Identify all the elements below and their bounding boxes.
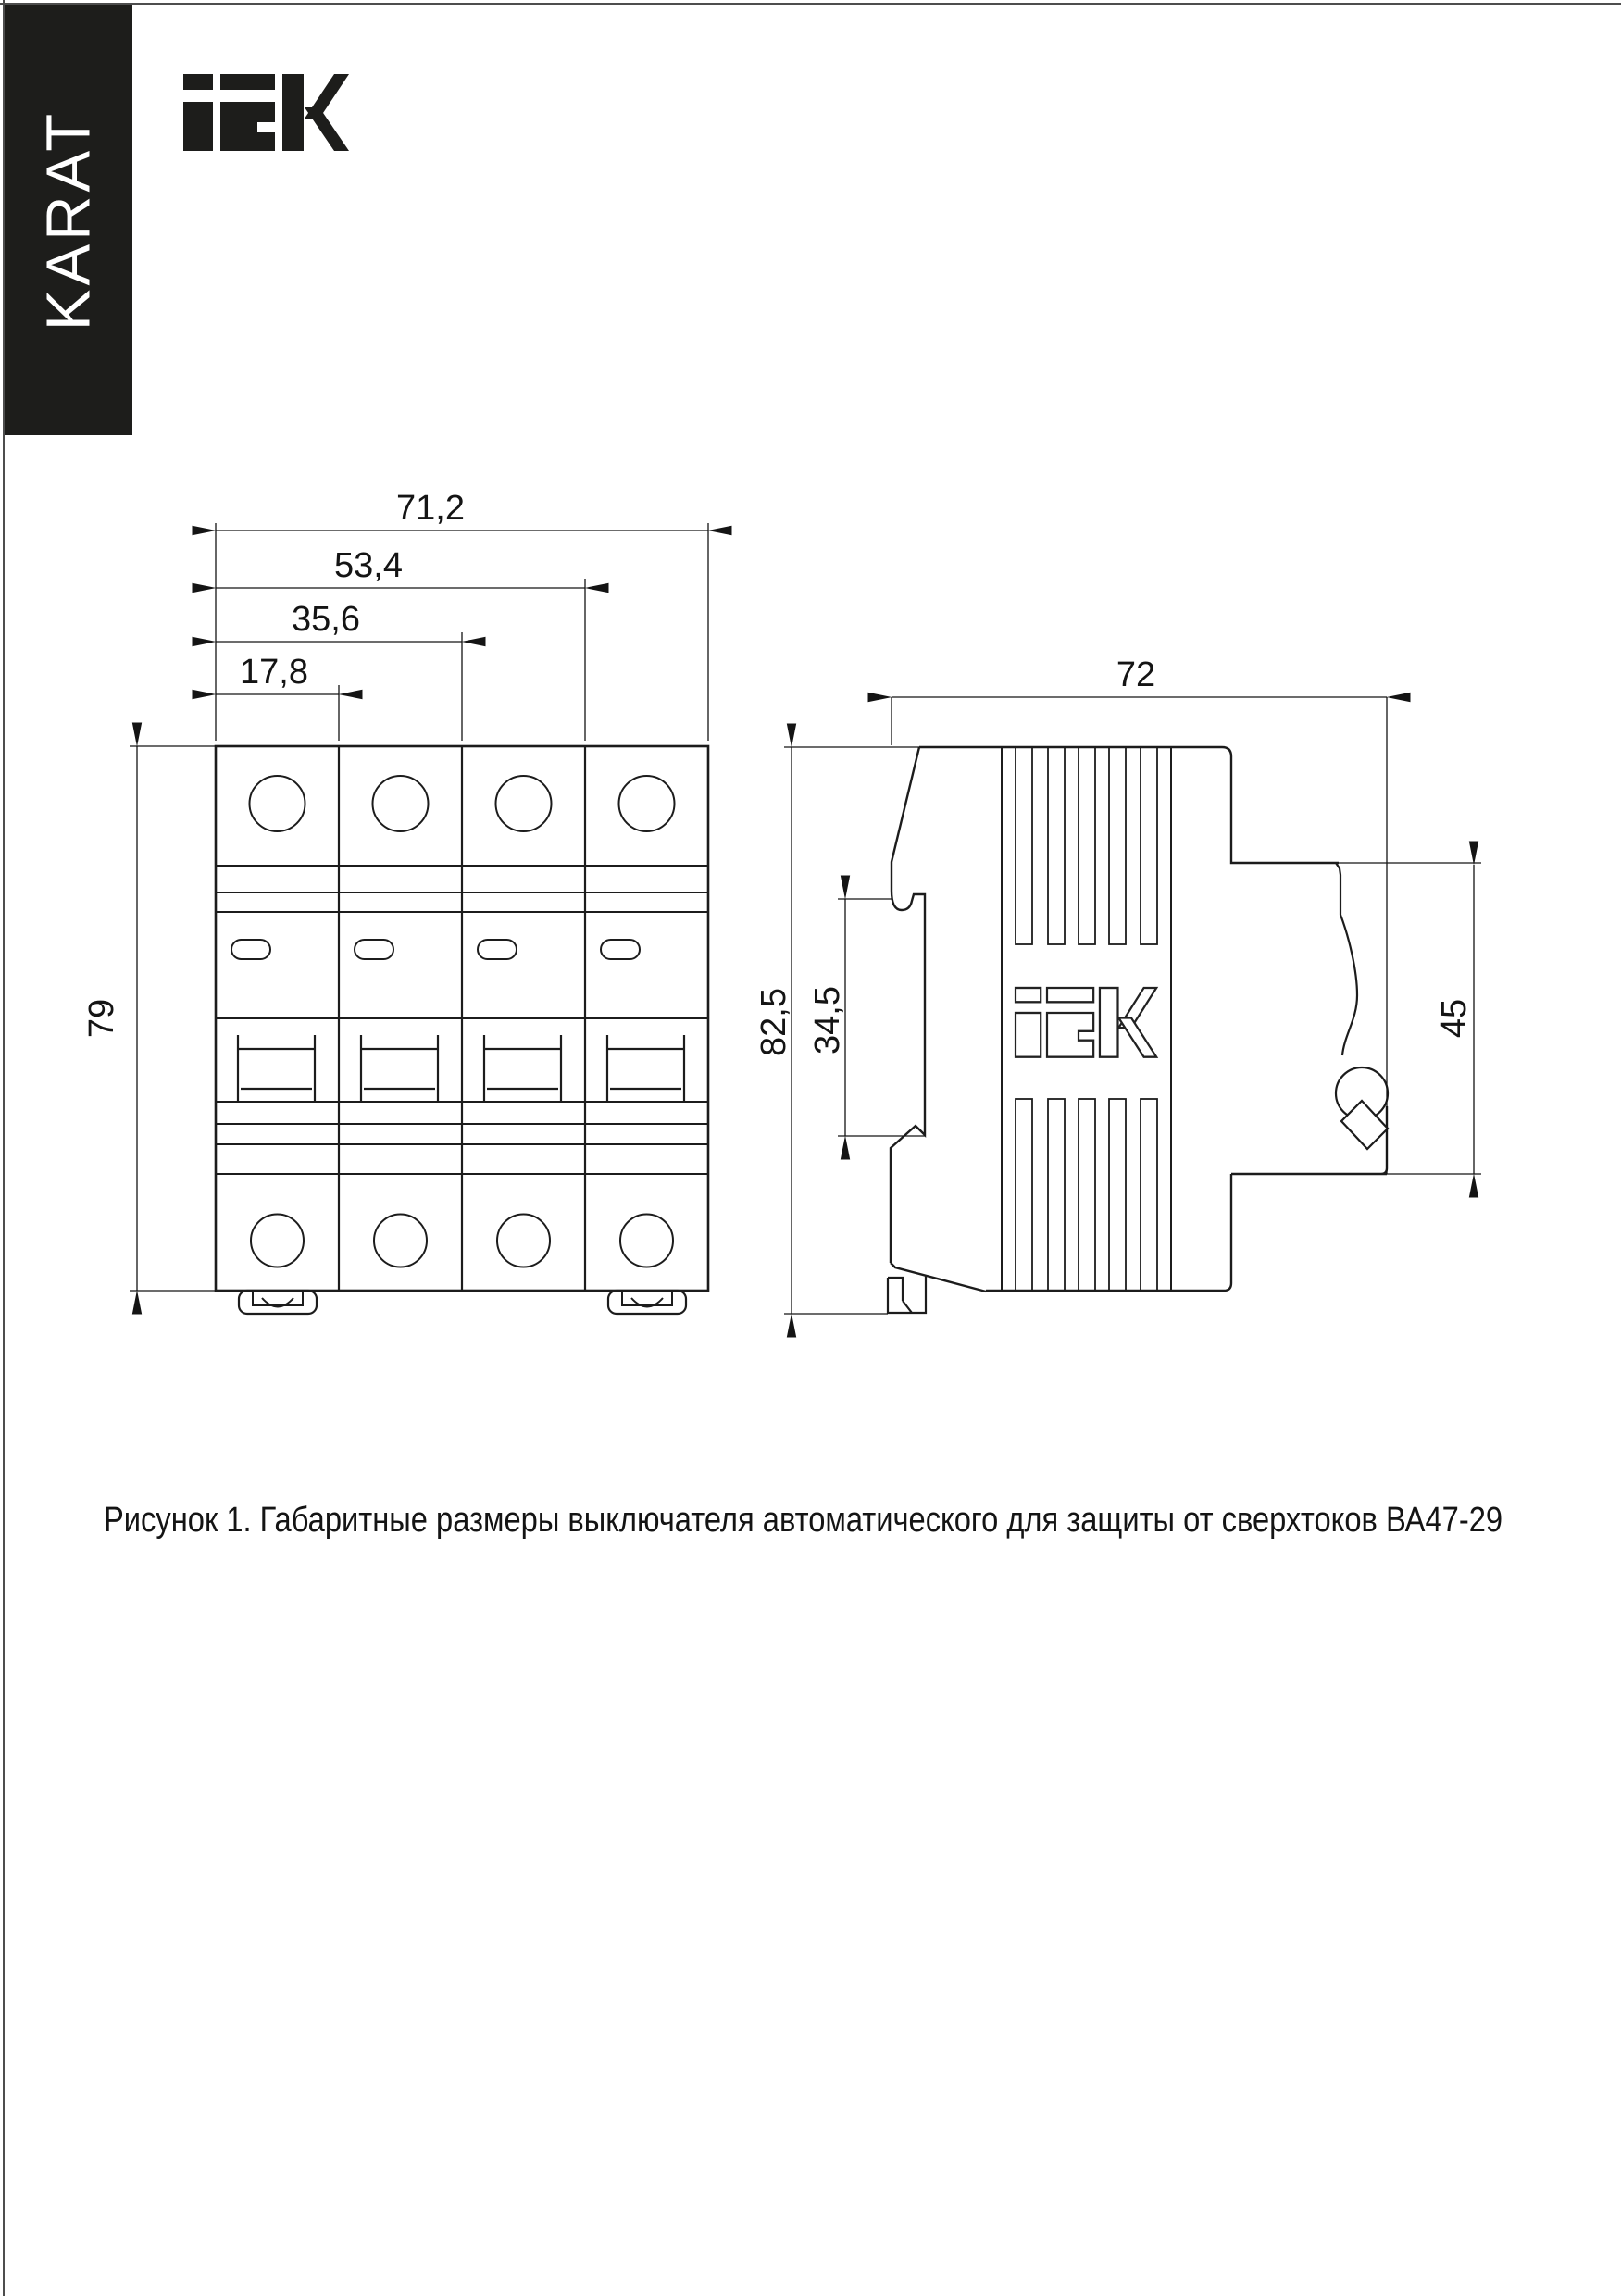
side-vent-slots-upper [1016,747,1157,944]
dim-label-53-4: 53,4 [334,546,403,585]
dim-label-82-5: 82,5 [754,988,793,1056]
dim-label-71-2: 71,2 [396,489,465,528]
dim-label-35-6: 35,6 [292,600,360,639]
dim-label-79: 79 [82,999,121,1038]
side-ext-34-5 [838,899,925,1136]
dim-label-45: 45 [1435,999,1474,1038]
side-ext-72 [892,697,1387,1174]
side-din-foot [888,1275,926,1313]
side-view-drawing [888,747,1388,1313]
side-screw-slot [1341,1101,1388,1149]
dim-label-17-8: 17,8 [240,653,308,692]
side-top-outline [919,747,1339,863]
front-din-clip [239,1291,317,1314]
front-pole [355,776,438,1267]
dimension-drawing: 17,8 35,6 53,4 71,2 79 [0,0,1621,2296]
side-vent-slots-lower [1016,1099,1157,1291]
dim-label-34-5: 34,5 [808,986,847,1054]
front-din-clip [608,1291,686,1314]
figure-caption: Рисунок 1. Габаритные размеры выключател… [104,1501,1393,1541]
side-left-profile [891,747,925,1263]
dim-label-72: 72 [1116,655,1155,694]
page: { "brand": { "karat": "KARAT", "iek": "I… [0,0,1621,2296]
front-pole [601,776,684,1267]
iek-logo-embossed [1016,988,1156,1057]
front-pole [478,776,561,1267]
front-ext-lines-left [130,746,216,1291]
front-view-dim-labels: 17,8 35,6 53,4 71,2 79 [82,489,465,1038]
side-bottom-outline [891,1174,1231,1291]
side-terminal-break-line [1336,863,1357,1055]
front-view-drawing [216,746,708,1314]
front-pole [231,776,315,1267]
front-ext-lines-top [216,523,708,741]
